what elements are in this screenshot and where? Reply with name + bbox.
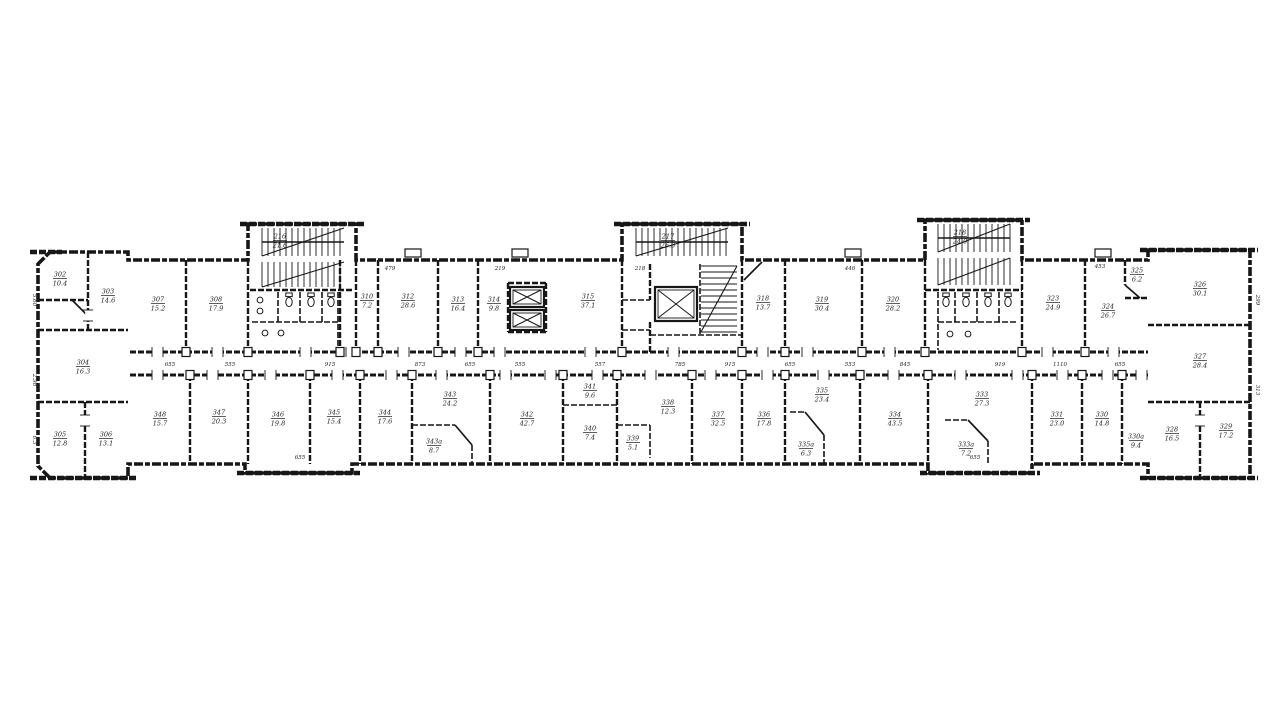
wall-junction-stud — [1028, 371, 1036, 380]
wall-junction-stud — [1081, 348, 1089, 357]
sink-fixture — [965, 331, 971, 337]
toilet-fixture — [308, 297, 314, 306]
facade-pilaster-tab — [1095, 249, 1111, 257]
room-number-label: 340 — [584, 425, 596, 433]
wall-junction-stud — [244, 371, 252, 380]
room-number-label: 218 — [953, 229, 966, 237]
dimension-label: 1110 — [1053, 362, 1067, 368]
wall-junction-stud — [356, 371, 364, 380]
dimension-label: 5.60 — [31, 294, 37, 307]
room-area-label: 16.3 — [76, 368, 90, 376]
room-number-label: 345 — [328, 409, 340, 417]
room-area-label: 42.7 — [519, 420, 535, 428]
toilet-fixture — [286, 297, 292, 306]
door-opening — [152, 372, 163, 378]
door-opening — [265, 372, 276, 378]
room-area-label: 16.5 — [1165, 435, 1179, 443]
wall-junction-stud — [613, 371, 621, 380]
door-opening — [436, 372, 447, 378]
toilet-tank — [286, 293, 292, 297]
dimension-label: 299 — [1254, 294, 1260, 306]
room-number-label: 341 — [584, 383, 596, 391]
room-number-label: 307 — [152, 296, 165, 304]
dimension-label: 219 — [494, 266, 506, 272]
wall-junction-stud — [244, 348, 252, 357]
room-number-label: 310 — [361, 293, 373, 301]
door-opening — [757, 349, 768, 355]
room-number-label: 308 — [210, 296, 222, 304]
toilet-tank — [328, 293, 334, 297]
toilet-fixture — [985, 297, 991, 306]
room-area-label: 24.2 — [442, 400, 457, 408]
room-area-label: 37.1 — [581, 302, 595, 310]
dimension-label: 785 — [675, 362, 686, 368]
floor-plan-page: 30210.430314.630416.330512.830613.130715… — [0, 0, 1280, 720]
room-area-label: 9.4 — [1131, 442, 1141, 450]
room-area-label: 23.4 — [814, 396, 829, 404]
room-number-label: 333a — [958, 441, 974, 449]
wall-junction-stud — [738, 371, 746, 380]
dimension-label: 446 — [844, 266, 856, 272]
wall-junction-stud — [408, 371, 416, 380]
room-area-label: 9.6 — [585, 392, 595, 400]
dimension-label: 218 — [634, 266, 646, 272]
wall-junction-stud — [374, 348, 382, 357]
chamfer-wall — [805, 412, 824, 435]
room-number-label: 325 — [1131, 267, 1143, 275]
facade-pilaster-tab — [512, 249, 528, 257]
sink-fixture — [262, 330, 268, 336]
wall-junction-stud — [1078, 371, 1086, 380]
room-number-label: 306 — [100, 431, 112, 439]
room-area-label: 26.3 — [660, 242, 675, 250]
wall-junction-stud — [618, 348, 626, 357]
room-area-label: 5.1 — [628, 444, 638, 452]
dimension-label: 453 — [1094, 264, 1106, 270]
room-number-label: 217 — [661, 233, 675, 241]
wall-junction-stud — [352, 348, 360, 357]
door-opening — [884, 349, 895, 355]
room-area-label: 17.2 — [1219, 432, 1233, 440]
wall-junction-stud — [1118, 371, 1126, 380]
door-opening — [1197, 415, 1203, 426]
room-area-label: 17.6 — [378, 418, 392, 426]
room-area-label: 27.3 — [974, 400, 989, 408]
dimension-label: 555 — [515, 362, 526, 368]
dimension-label: 553 — [845, 362, 856, 368]
door-opening — [494, 349, 505, 355]
toilet-tank — [943, 293, 949, 297]
door-opening — [1102, 372, 1113, 378]
room-number-label: 343a — [426, 438, 442, 446]
room-area-label: 24.0 — [952, 238, 967, 246]
toilet-tank — [963, 293, 969, 297]
room-area-label: 28.4 — [1192, 362, 1207, 370]
room-area-label: 26.7 — [1100, 312, 1116, 320]
dimension-label: 2.98 — [31, 373, 37, 387]
room-area-label: 9.8 — [489, 305, 499, 313]
room-number-label: 305 — [54, 431, 66, 439]
wall-junction-stud — [856, 371, 864, 380]
room-number-label: 339 — [627, 435, 639, 443]
room-number-label: 348 — [154, 411, 166, 419]
door-opening — [1108, 349, 1119, 355]
sink-fixture — [947, 331, 953, 337]
wall-junction-stud — [781, 371, 789, 380]
room-area-label: 12.8 — [53, 440, 67, 448]
room-area-label: 32.5 — [711, 420, 725, 428]
door-opening — [705, 372, 716, 378]
door-opening — [300, 349, 311, 355]
dimension-label: 919 — [995, 362, 1006, 368]
room-number-label: 346 — [272, 411, 284, 419]
room-number-label: 324 — [1102, 303, 1114, 311]
dimension-label: 915 — [725, 362, 736, 368]
dimension-label: 6.3 — [31, 436, 37, 445]
room-number-label: 320 — [887, 296, 899, 304]
room-area-label: 23.0 — [1049, 420, 1064, 428]
dimension-label: 655 — [1115, 362, 1126, 368]
toilet-fixture — [943, 297, 949, 306]
wall-junction-stud — [182, 348, 190, 357]
room-number-label: 302 — [54, 271, 66, 279]
door-opening — [585, 349, 596, 355]
chamfer-wall — [744, 262, 762, 280]
door-opening — [85, 310, 91, 321]
wall-junction-stud — [858, 348, 866, 357]
chamfer-wall — [455, 425, 472, 445]
room-number-label: 314 — [488, 296, 500, 304]
room-number-label: 342 — [521, 411, 533, 419]
room-number-label: 331 — [1051, 411, 1063, 419]
dimension-label: 655 — [465, 362, 476, 368]
door-opening — [592, 372, 603, 378]
facade-pilaster-tab — [845, 249, 861, 257]
room-number-label: 333 — [976, 391, 988, 399]
wall-junction-stud — [186, 371, 194, 380]
door-opening — [1136, 372, 1147, 378]
door-opening — [1012, 372, 1023, 378]
sink-fixture — [257, 297, 263, 303]
building-outline — [38, 220, 1250, 478]
wall-junction-stud — [1018, 348, 1026, 357]
door-opening — [888, 372, 899, 378]
toilet-tank — [1005, 293, 1011, 297]
room-area-label: 14.8 — [1095, 420, 1109, 428]
room-area-label: 12.3 — [661, 408, 675, 416]
room-number-label: 304 — [77, 359, 89, 367]
wall-junction-stud — [434, 348, 442, 357]
room-area-label: 30.1 — [1193, 290, 1207, 298]
dimension-label: 313 — [1254, 385, 1260, 396]
room-area-label: 21.6 — [272, 242, 287, 250]
toilet-tank — [985, 293, 991, 297]
room-area-label: 13.7 — [756, 304, 771, 312]
room-number-label: 313 — [452, 296, 464, 304]
toilet-fixture — [328, 297, 334, 306]
room-number-label: 328 — [1166, 426, 1178, 434]
room-area-label: 13.1 — [99, 440, 113, 448]
room-number-label: 347 — [213, 409, 226, 417]
room-area-label: 20.3 — [211, 418, 226, 426]
room-number-label: 329 — [1220, 423, 1232, 431]
wall-junction-stud — [921, 348, 929, 357]
room-number-label: 337 — [712, 411, 725, 419]
dimension-label: 655 — [165, 362, 176, 368]
room-area-label: 6.2 — [1132, 276, 1142, 284]
door-opening — [398, 349, 409, 355]
room-area-label: 30.4 — [815, 305, 829, 313]
door-opening — [207, 372, 218, 378]
room-area-label: 19.8 — [271, 420, 285, 428]
room-area-label: 16.4 — [451, 305, 465, 313]
room-area-label: 7.4 — [585, 434, 595, 442]
dimension-label: 557 — [595, 362, 606, 368]
dimension-label: 873 — [415, 362, 426, 368]
room-area-label: 6.3 — [801, 450, 811, 458]
room-number-label: 330a — [1128, 433, 1144, 441]
sink-fixture — [257, 308, 263, 314]
room-area-label: 15.7 — [153, 420, 168, 428]
room-area-label: 15.2 — [151, 305, 165, 313]
door-opening — [955, 372, 966, 378]
room-area-label: 43.5 — [887, 420, 902, 428]
dimension-label: 655 — [295, 455, 306, 461]
door-opening — [802, 349, 813, 355]
room-area-label: 15.4 — [327, 418, 341, 426]
room-number-label: 216 — [273, 233, 286, 241]
wall-junction-stud — [474, 348, 482, 357]
toilet-tank — [308, 293, 314, 297]
room-number-label: 335 — [816, 387, 828, 395]
dimension-label: 845 — [900, 362, 911, 368]
door-opening — [386, 372, 397, 378]
dimension-label: 479 — [384, 266, 396, 272]
stair-break-line — [701, 266, 737, 332]
room-number-label: 323 — [1047, 295, 1059, 303]
room-number-label: 343 — [444, 391, 456, 399]
door-opening — [545, 372, 556, 378]
wall-junction-stud — [781, 348, 789, 357]
room-number-label: 303 — [102, 288, 114, 296]
room-area-label: 10.4 — [53, 280, 67, 288]
room-number-label: 335a — [798, 441, 814, 449]
room-area-label: 7.2 — [362, 302, 372, 310]
room-area-label: 24.9 — [1045, 304, 1060, 312]
door-opening — [1057, 372, 1068, 378]
wall-junction-stud — [306, 371, 314, 380]
wall-junction-stud — [486, 371, 494, 380]
room-number-label: 327 — [1194, 353, 1207, 361]
door-opening — [82, 415, 88, 426]
door-opening — [762, 372, 773, 378]
door-opening — [332, 372, 343, 378]
sink-fixture — [278, 330, 284, 336]
room-number-label: 334 — [889, 411, 901, 419]
room-area-label: 17.9 — [209, 305, 223, 313]
door-opening — [668, 349, 679, 355]
door-opening — [500, 372, 511, 378]
facade-pilaster-tab — [405, 249, 421, 257]
wall-junction-stud — [688, 371, 696, 380]
room-number-label: 326 — [1194, 281, 1206, 289]
room-area-label: 28.2 — [885, 305, 900, 313]
dimension-label: 655 — [970, 455, 981, 461]
room-number-label: 319 — [816, 296, 828, 304]
toilet-fixture — [1005, 297, 1011, 306]
room-area-label: 28.6 — [400, 302, 415, 310]
door-opening — [818, 372, 829, 378]
room-area-label: 17.8 — [757, 420, 771, 428]
door-opening — [1042, 349, 1053, 355]
dimension-label: 915 — [325, 362, 336, 368]
room-number-label: 344 — [379, 409, 391, 417]
dimension-label: 655 — [785, 362, 796, 368]
wall-junction-stud — [336, 348, 344, 357]
wall-junction-stud — [559, 371, 567, 380]
room-number-label: 318 — [757, 295, 769, 303]
door-opening — [152, 349, 163, 355]
chamfer-wall — [968, 420, 988, 441]
door-opening — [455, 349, 466, 355]
floor-plan-drawing: 30210.430314.630416.330512.830613.130715… — [0, 0, 1280, 720]
room-number-label: 312 — [402, 293, 414, 301]
chamfer-wall — [1125, 285, 1140, 298]
door-opening — [645, 372, 656, 378]
room-area-label: 8.7 — [429, 447, 440, 455]
room-area-label: 14.6 — [101, 297, 115, 305]
dimension-label: 555 — [225, 362, 236, 368]
room-number-label: 338 — [662, 399, 674, 407]
toilet-fixture — [963, 297, 969, 306]
door-opening — [212, 349, 223, 355]
room-number-label: 315 — [582, 293, 594, 301]
wall-junction-stud — [738, 348, 746, 357]
wall-junction-stud — [924, 371, 932, 380]
room-number-label: 336 — [758, 411, 770, 419]
room-number-label: 330 — [1096, 411, 1108, 419]
